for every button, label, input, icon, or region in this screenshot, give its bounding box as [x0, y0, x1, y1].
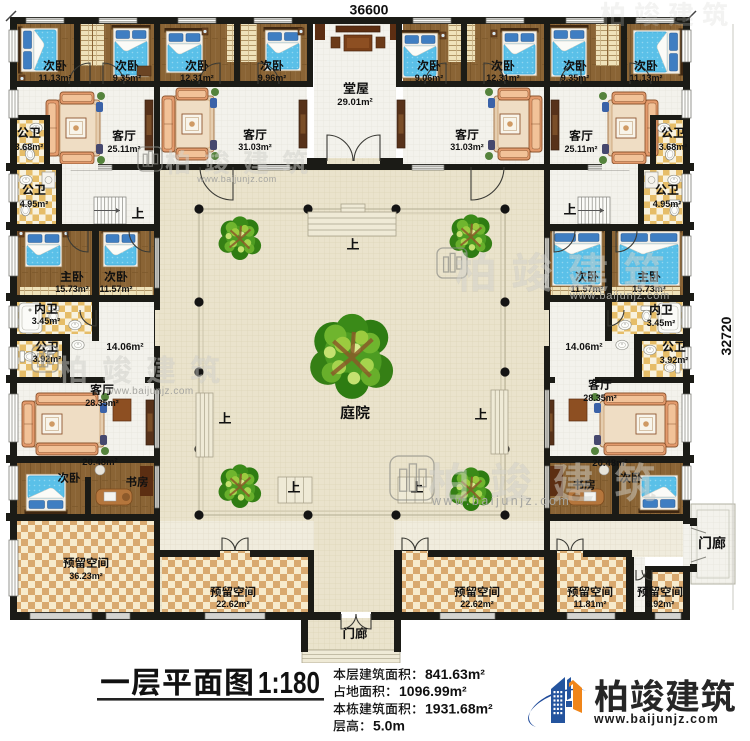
svg-text:1931.68m²: 1931.68m² [425, 701, 493, 717]
svg-text:6.92m²: 6.92m² [646, 599, 675, 609]
svg-text:www.baijunjz.com: www.baijunjz.com [105, 386, 193, 397]
svg-text:www.baijunjz.com: www.baijunjz.com [593, 712, 719, 726]
svg-text:11.13m²: 11.13m² [629, 73, 662, 83]
svg-text:14.06m²: 14.06m² [106, 342, 144, 353]
svg-text:4.95m²: 4.95m² [653, 199, 682, 209]
svg-text:11.13m²: 11.13m² [38, 73, 71, 83]
svg-text:www.baijunjz.com: www.baijunjz.com [569, 290, 670, 302]
svg-text:29.01m²: 29.01m² [337, 97, 372, 108]
svg-text:9.06m²: 9.06m² [415, 73, 444, 83]
svg-text:31.03m²: 31.03m² [450, 142, 484, 152]
svg-text:25.11m²: 25.11m² [564, 144, 597, 154]
svg-text:1096.99m²: 1096.99m² [399, 683, 467, 699]
svg-text:11.57m²: 11.57m² [99, 284, 132, 294]
svg-text:25.11m²: 25.11m² [107, 144, 140, 154]
svg-text:22.62m²: 22.62m² [216, 599, 250, 609]
svg-text:www.baijunjz.com: www.baijunjz.com [196, 174, 277, 184]
svg-text:841.63m²: 841.63m² [425, 666, 485, 682]
svg-text:9.35m²: 9.35m² [113, 73, 142, 83]
svg-text:5.0m: 5.0m [373, 718, 405, 734]
svg-text:12.31m²: 12.31m² [486, 73, 520, 83]
svg-text:28.35m²: 28.35m² [85, 398, 119, 408]
svg-text:3.45m²: 3.45m² [32, 316, 61, 326]
svg-text:22.62m²: 22.62m² [460, 599, 494, 609]
svg-text:www.baijunjz.com: www.baijunjz.com [431, 494, 571, 508]
svg-text:14.06m²: 14.06m² [565, 342, 603, 353]
svg-text:3.68m²: 3.68m² [15, 142, 44, 152]
svg-text:3.92m²: 3.92m² [660, 355, 689, 365]
svg-text:4.95m²: 4.95m² [20, 199, 49, 209]
svg-text:15.73m²: 15.73m² [55, 284, 89, 294]
svg-text:11.81m²: 11.81m² [573, 599, 606, 609]
svg-text:28.35m²: 28.35m² [583, 393, 617, 403]
svg-text:9.35m²: 9.35m² [561, 73, 590, 83]
svg-text:31.03m²: 31.03m² [238, 142, 272, 152]
svg-text:32720: 32720 [718, 316, 734, 355]
svg-text:3.68m²: 3.68m² [659, 142, 688, 152]
svg-text:1:180: 1:180 [258, 665, 320, 700]
svg-text:3.45m²: 3.45m² [647, 318, 676, 328]
svg-text:36.23m²: 36.23m² [69, 571, 103, 581]
svg-text:12.31m²: 12.31m² [180, 73, 214, 83]
svg-text:36600: 36600 [350, 2, 389, 18]
svg-text:9.96m²: 9.96m² [258, 73, 287, 83]
svg-text:20.48m²: 20.48m² [82, 457, 117, 468]
